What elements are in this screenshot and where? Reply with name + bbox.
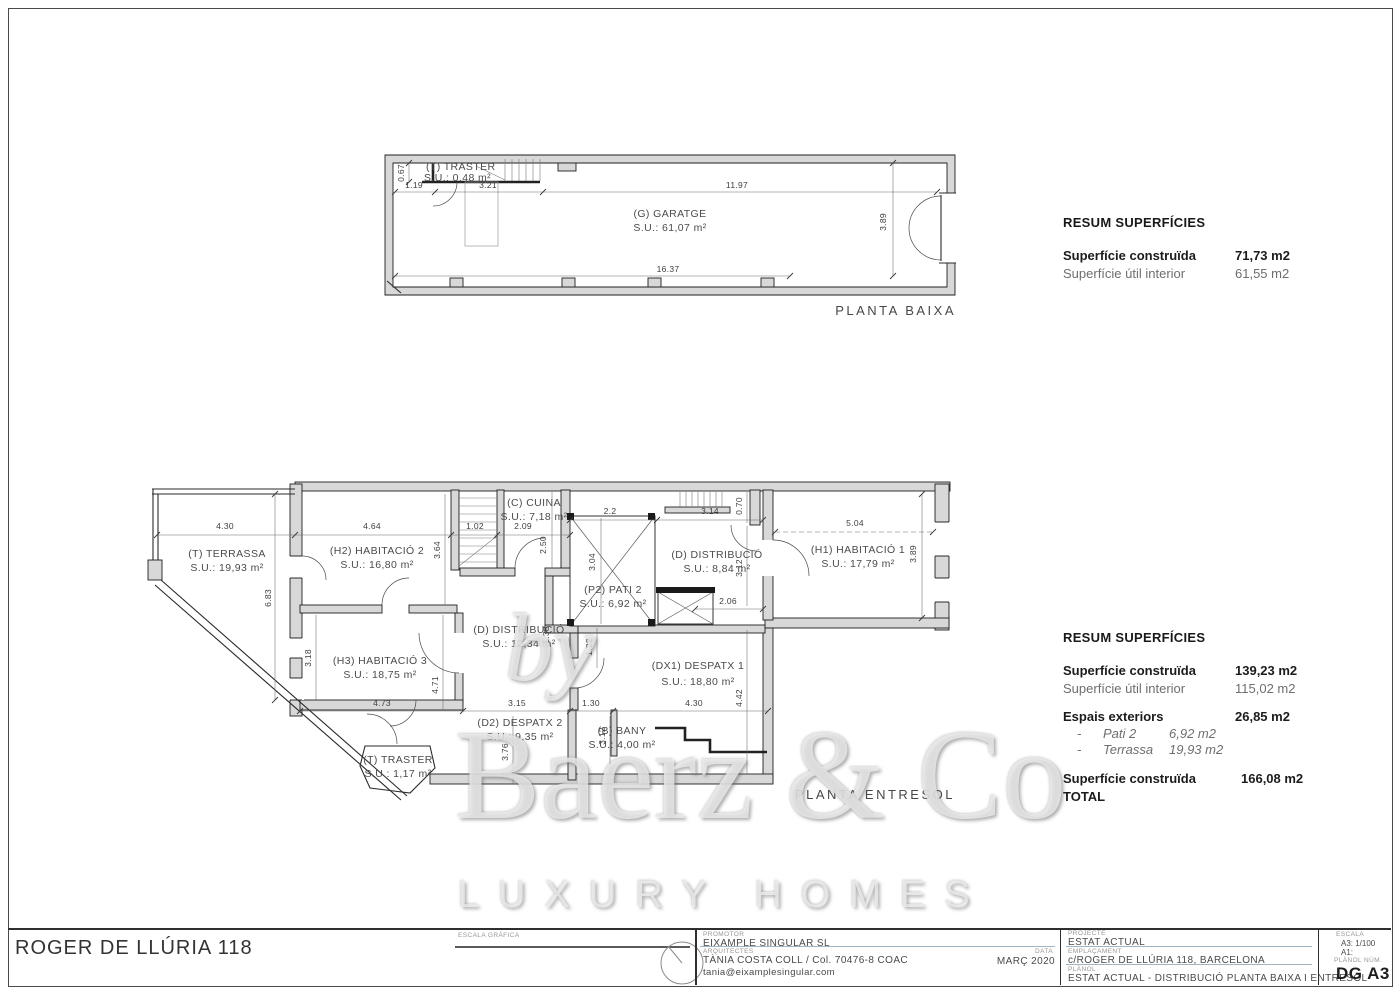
summary-pb-row: Superfície útil interior 61,55 m2: [1063, 265, 1398, 283]
dim-3-18: 3.18: [303, 649, 313, 667]
summary-pb-construida-label: Superfície construïda: [1063, 247, 1235, 265]
summary-pe-row: Superfície construïda 139,23 m2: [1063, 662, 1398, 680]
room-label-habitacio2: (H2) HABITACIÓ 2: [330, 544, 424, 557]
room-area-despatx2: S.U.: 9,35 m²: [486, 731, 553, 743]
room-label-habitacio3: (H3) HABITACIÓ 3: [333, 654, 427, 667]
summary-planta-baixa: RESUM SUPERFÍCIES Superfície construïda …: [1063, 215, 1398, 283]
summary-pb-row: Superfície construïda 71,73 m2: [1063, 247, 1398, 265]
dim-1-19: 1.19: [405, 180, 423, 190]
room-label-despatx2: (D2) DESPATX 2: [477, 717, 562, 729]
dim-3-89-pe: 3.89: [908, 545, 918, 563]
sheet-project-name: ROGER DE LLÚRIA 118: [15, 937, 253, 960]
summary-pe-row: Espais exteriors 26,85 m2: [1063, 708, 1398, 726]
summary-pb-util-value: 61,55 m2: [1235, 265, 1289, 283]
summary-pe-terrassa-value: 19,93 m2: [1169, 742, 1223, 758]
dim-11-97: 11.97: [726, 180, 748, 190]
bullet-dash: -: [1077, 742, 1103, 758]
room-label-terrassa: (T) TERRASSA: [188, 548, 266, 560]
arquitectes-email: tania@eixamplesingular.com: [703, 967, 835, 978]
room-label-distribucio-l: (D) DISTRIBUCIÓ: [473, 623, 564, 636]
data-value: MARÇ 2020: [985, 956, 1055, 967]
dim-3-04: 3.04: [587, 553, 597, 571]
plan-label-planta-baixa: PLANTA BAIXA: [835, 303, 956, 318]
room-area-pati2: S.U.: 6,92 m²: [579, 598, 646, 610]
summary-pe-total-value: 166,08 m2: [1241, 770, 1303, 806]
summary-pe-construida-label: Superfície construïda: [1063, 662, 1235, 680]
room-area-terrassa: S.U.: 19,93 m²: [190, 562, 263, 574]
summary-pe-total-row: Superfície construïda TOTAL 166,08 m2: [1063, 770, 1398, 806]
room-area-habitacio2: S.U.: 16,80 m²: [340, 559, 413, 571]
plan-label-planta-entresol: PLANTA ENTRESOL: [795, 787, 955, 802]
room-area-cuina: S.U.: 7,18 m²: [500, 511, 567, 523]
titleblock-top-border: [8, 928, 1391, 930]
planol-num-label: PLÀNOL NÚM.: [1334, 957, 1382, 964]
dim-1-30: 1.30: [582, 698, 600, 708]
dim-4-71: 4.71: [430, 676, 440, 694]
dim-1-02: 1.02: [466, 521, 484, 531]
room-area-distribucio-d: S.U.: 8,84 m²: [683, 563, 750, 575]
dim-4-30-top: 4.30: [216, 521, 234, 531]
summary-pe-exteriors-label: Espais exteriors: [1063, 708, 1235, 726]
dim-5-04: 5.04: [846, 518, 864, 528]
summary-pe-util-label: Superfície útil interior: [1063, 680, 1235, 698]
summary-pe-exteriors-value: 26,85 m2: [1235, 708, 1290, 726]
room-area-distribucio-l: S.U.: 12,34 m²: [482, 638, 555, 650]
escala-grafica-label: ESCALA GRÁFICA: [458, 932, 520, 939]
dim-4-73: 4.73: [373, 698, 391, 708]
pb-room-labels: (T) TRASTER S.U.: 0,48 m² (G) GARATGE S.…: [424, 161, 707, 234]
titleblock-rule: [1066, 946, 1312, 947]
esc-a3: A3: 1/100: [1341, 939, 1375, 948]
arquitectes-value: TÀNIA COSTA COLL / Col. 70476-8 COAC: [703, 955, 908, 966]
floor-plan-planta-entresol: 4.30 4.64 1.02 2.09 2.2 3.14 5.04 2.06 4…: [145, 478, 960, 813]
summary-pe-construida-value: 139,23 m2: [1235, 662, 1297, 680]
titleblock-rule: [700, 946, 1055, 947]
dim-3-14: 3.14: [701, 506, 719, 516]
room-label-garatge: (G) GARATGE: [633, 208, 706, 220]
data-label: DATA: [1035, 948, 1053, 955]
dim-16-37: 16.37: [657, 264, 680, 274]
esc-label: ESCALA: [1336, 931, 1364, 938]
room-area-despatx1: S.U.: 18,80 m²: [661, 676, 734, 688]
summary-pe-pati2-label: Pati 2: [1103, 726, 1169, 742]
titleblock-divider: [1318, 929, 1319, 985]
dim-0-67: 0.67: [396, 164, 406, 182]
summary-pe-subrow: - Terrassa 19,93 m2: [1063, 742, 1398, 758]
dim-3-89-pb: 3.89: [878, 213, 888, 231]
dim-4-30-bottom: 4.30: [685, 698, 703, 708]
summary-pe-terrassa-label: Terrassa: [1103, 742, 1169, 758]
titleblock-rule: [1066, 964, 1312, 965]
room-label-distribucio-d: (D) DISTRIBUCIÓ: [671, 548, 762, 561]
dim-3-64: 3.64: [432, 541, 442, 559]
room-area-bany: S.U.: 4,00 m²: [588, 739, 655, 751]
dim-4-42: 4.42: [734, 689, 744, 707]
projecte-label: PROJECTE: [1068, 930, 1106, 937]
summary-pe-pati2-value: 6,92 m2: [1169, 726, 1216, 742]
dim-3-76: 3.76: [500, 743, 510, 761]
room-area-traster-pe: S.U.: 1,17 m²: [364, 768, 431, 780]
room-area-habitacio1: S.U.: 17,79 m²: [821, 558, 894, 570]
dim-1-22: 1.22: [584, 638, 594, 656]
dim-2-50: 2.50: [538, 536, 548, 554]
titleblock-divider: [695, 929, 697, 985]
titleblock-divider: [1060, 929, 1061, 985]
room-label-pati2: (P2) PATI 2: [584, 584, 642, 596]
dim-4-64: 4.64: [363, 521, 381, 531]
plan-sheet: { "watermark": { "by": "by", "brand": "B…: [0, 0, 1400, 989]
room-area-garatge: S.U.: 61,07 m²: [633, 222, 706, 234]
dim-6-83: 6.83: [263, 589, 273, 607]
summary-pb-title: RESUM SUPERFÍCIES: [1063, 215, 1398, 230]
room-label-despatx1: (DX1) DESPATX 1: [652, 660, 745, 672]
room-area-habitacio3: S.U.: 18,75 m²: [343, 669, 416, 681]
summary-pb-util-label: Superfície útil interior: [1063, 265, 1235, 283]
arquitectes-label: ARQUITECTES: [703, 948, 754, 955]
summary-planta-entresol: RESUM SUPERFÍCIES Superfície construïda …: [1063, 630, 1398, 806]
dim-2-06: 2.06: [719, 596, 737, 606]
dim-3-15: 3.15: [508, 698, 526, 708]
promotor-label: PROMOTOR: [703, 931, 744, 938]
pe-elevator: [656, 587, 715, 624]
room-label-habitacio1: (H1) HABITACIÓ 1: [811, 543, 905, 556]
planol-value: ESTAT ACTUAL - DISTRIBUCIÓ PLANTA BAIXA …: [1068, 973, 1368, 984]
dim-0-70: 0.70: [734, 497, 744, 515]
floor-plan-planta-baixa: 1.19 3.21 11.97 16.37 0.67 3.89 (T) TRAS…: [380, 148, 960, 328]
planol-label: PLÀNOL: [1068, 966, 1096, 973]
emplacament-label: EMPLAÇAMENT: [1068, 948, 1122, 955]
room-area-traster-pb: S.U.: 0,48 m²: [424, 172, 491, 184]
room-label-traster-pe: (T) TRASTER: [363, 754, 433, 766]
dim-2-2: 2.2: [604, 506, 617, 516]
bullet-dash: -: [1077, 726, 1103, 742]
room-label-cuina: (C) CUINA: [507, 497, 561, 509]
summary-pe-title: RESUM SUPERFÍCIES: [1063, 630, 1398, 645]
room-label-bany: (B) BANY: [598, 725, 647, 737]
summary-pe-row: Superfície útil interior 115,02 m2: [1063, 680, 1398, 698]
summary-pe-total-label: Superfície construïda TOTAL: [1063, 770, 1241, 806]
esc-a1: A1:: [1341, 948, 1353, 957]
planol-num-value: DG A3: [1336, 964, 1390, 984]
summary-pe-util-value: 115,02 m2: [1235, 680, 1295, 698]
summary-pe-subrow: - Pati 2 6,92 m2: [1063, 726, 1398, 742]
summary-pb-construida-value: 71,73 m2: [1235, 247, 1290, 265]
